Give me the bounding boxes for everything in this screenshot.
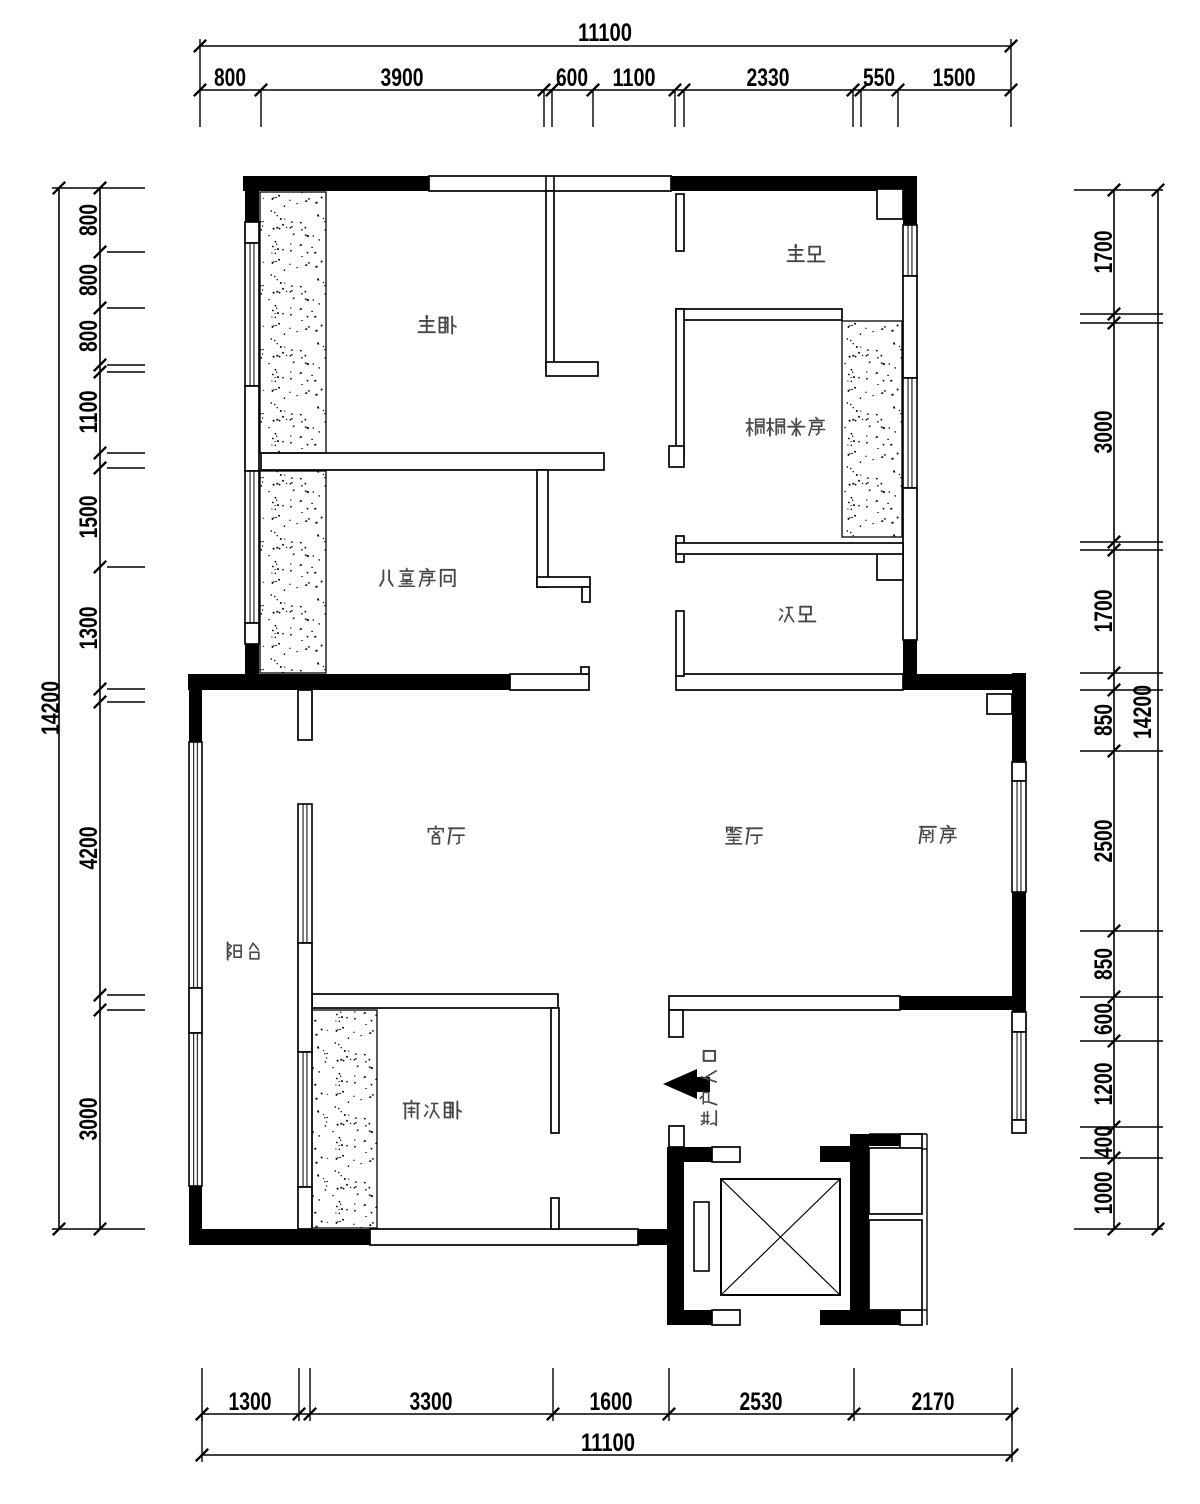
svg-text:11100: 11100 [578, 19, 632, 47]
svg-text:3300: 3300 [410, 1388, 453, 1416]
svg-text:1300: 1300 [75, 607, 103, 650]
svg-text:850: 850 [1090, 948, 1118, 980]
svg-text:14200: 14200 [1129, 685, 1157, 739]
svg-text:1700: 1700 [1090, 231, 1118, 274]
svg-text:2170: 2170 [912, 1388, 955, 1416]
svg-text:4200: 4200 [75, 827, 103, 870]
svg-text:800: 800 [214, 64, 246, 92]
svg-text:400: 400 [1090, 1126, 1118, 1158]
svg-text:800: 800 [75, 204, 103, 236]
svg-text:1200: 1200 [1090, 1063, 1118, 1106]
svg-text:1100: 1100 [75, 391, 103, 434]
svg-text:1600: 1600 [590, 1388, 633, 1416]
svg-text:3900: 3900 [381, 64, 424, 92]
svg-text:14200: 14200 [37, 681, 65, 735]
svg-text:1300: 1300 [229, 1388, 272, 1416]
svg-text:800: 800 [75, 320, 103, 352]
svg-text:3000: 3000 [75, 1098, 103, 1141]
svg-text:550: 550 [863, 64, 895, 92]
svg-text:1500: 1500 [75, 496, 103, 539]
svg-text:3000: 3000 [1090, 411, 1118, 454]
svg-text:2500: 2500 [1090, 820, 1118, 863]
svg-text:1100: 1100 [613, 64, 656, 92]
svg-text:600: 600 [1090, 1003, 1118, 1035]
svg-text:800: 800 [75, 264, 103, 296]
svg-text:600: 600 [556, 64, 588, 92]
svg-text:1700: 1700 [1090, 590, 1118, 633]
svg-text:2530: 2530 [740, 1388, 783, 1416]
svg-text:1000: 1000 [1090, 1172, 1118, 1215]
svg-text:11100: 11100 [581, 1429, 635, 1457]
svg-text:850: 850 [1090, 704, 1118, 736]
svg-text:2330: 2330 [747, 64, 790, 92]
svg-text:1500: 1500 [933, 64, 976, 92]
